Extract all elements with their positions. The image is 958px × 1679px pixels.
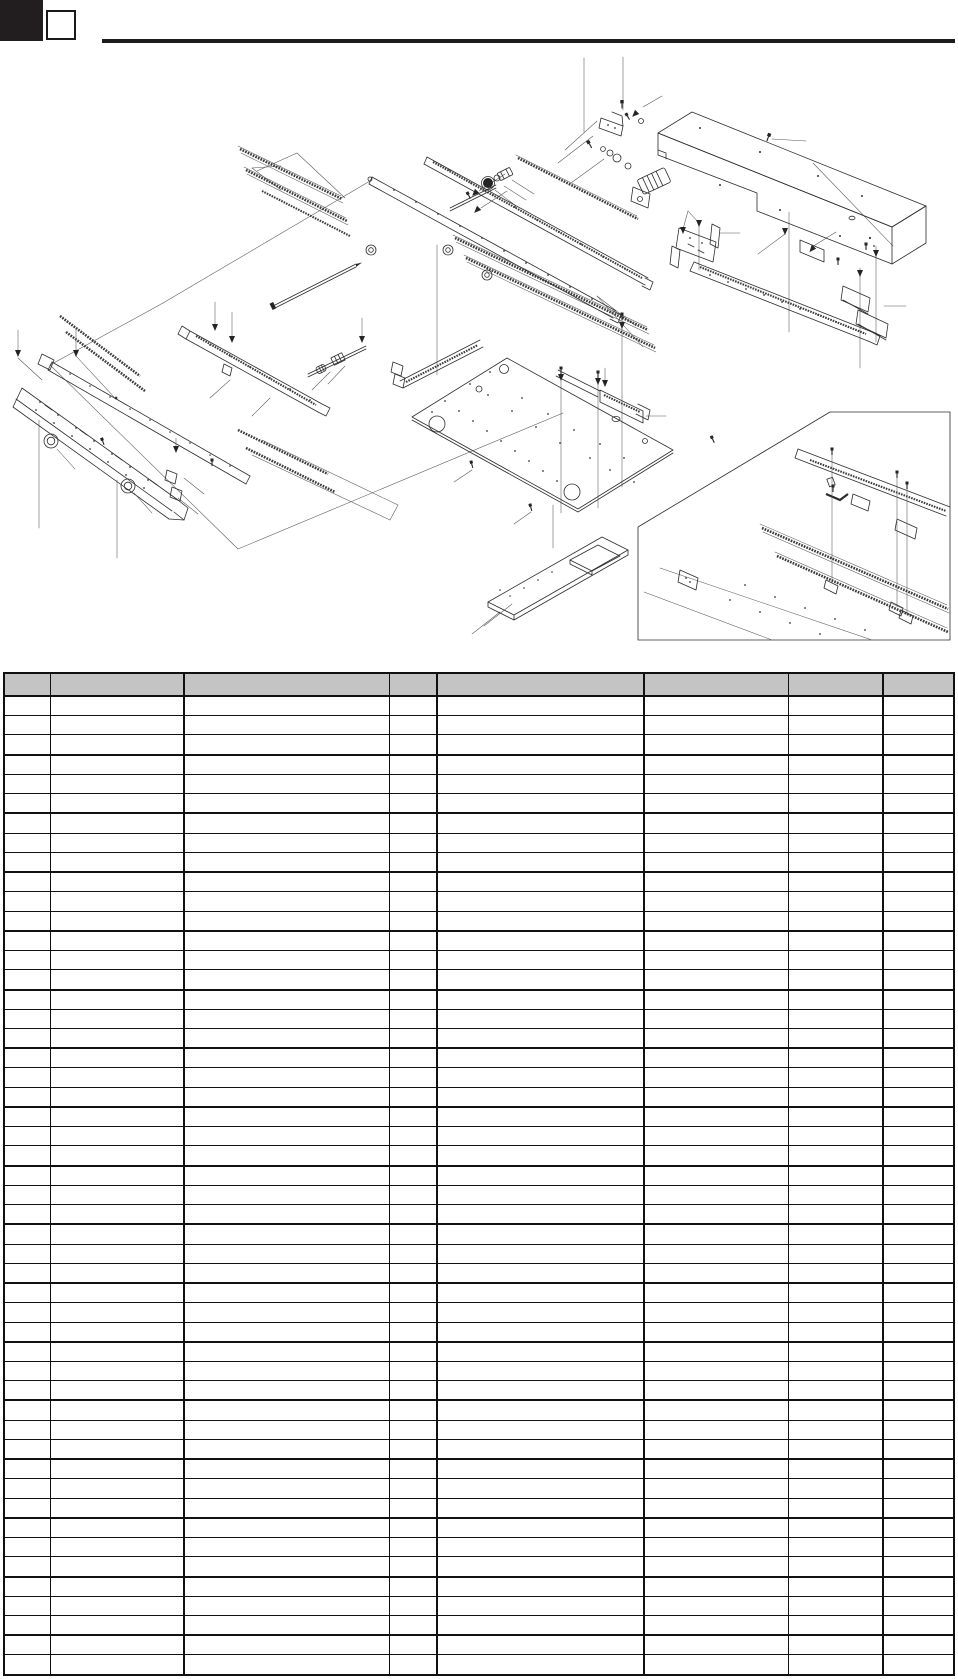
table-cell (51, 1557, 185, 1575)
table-cell (51, 1049, 185, 1067)
table-cell (789, 1323, 884, 1341)
table-cell (185, 1029, 390, 1047)
table-cell (438, 794, 645, 812)
table-cell (51, 1146, 185, 1164)
table-cell (51, 1499, 185, 1517)
table-cell (645, 912, 789, 930)
table-cell (645, 853, 789, 871)
table-cell (5, 1029, 51, 1047)
table-cell (438, 1460, 645, 1478)
table-cell (884, 834, 953, 852)
table-cell (884, 794, 953, 812)
table-cell (884, 716, 953, 734)
table-cell (789, 1381, 884, 1399)
table-cell (390, 1636, 438, 1654)
table-cell (438, 1421, 645, 1439)
table-cell (5, 1538, 51, 1556)
table-cell (185, 1167, 390, 1185)
table-cell (884, 1303, 953, 1321)
table-cell (390, 1264, 438, 1282)
table-cell (390, 951, 438, 969)
table-cell (51, 1264, 185, 1282)
table-cell (645, 1245, 789, 1263)
table-cell (438, 1029, 645, 1047)
table-row (5, 1127, 953, 1146)
table-cell (438, 1088, 645, 1106)
table-cell (884, 1225, 953, 1243)
table-cell (5, 1205, 51, 1223)
header-cell (390, 674, 438, 695)
table-cell (5, 1167, 51, 1185)
table-cell (438, 1538, 645, 1556)
table-cell (884, 912, 953, 930)
table-cell (390, 716, 438, 734)
table-cell (789, 1186, 884, 1204)
table-cell (789, 1264, 884, 1282)
table-cell (789, 932, 884, 950)
table-cell (5, 912, 51, 930)
table-cell (789, 1245, 884, 1263)
table-row (5, 1205, 953, 1225)
table-cell (51, 814, 185, 832)
table-cell (645, 756, 789, 774)
table-cell (185, 1557, 390, 1575)
table-cell (185, 1323, 390, 1341)
table-cell (185, 1499, 390, 1517)
table-cell (51, 716, 185, 734)
table-cell (789, 912, 884, 930)
table-cell (51, 775, 185, 793)
table-cell (5, 1557, 51, 1575)
table-row (5, 1597, 953, 1616)
table-cell (884, 1421, 953, 1439)
table-cell (185, 1186, 390, 1204)
table-cell (438, 1205, 645, 1223)
table-cell (390, 1205, 438, 1223)
table-cell (185, 1421, 390, 1439)
table-cell (438, 1440, 645, 1458)
table-cell (5, 1225, 51, 1243)
table-cell (645, 794, 789, 812)
table-row (5, 735, 953, 755)
table-cell (5, 1323, 51, 1341)
cross-rails (178, 157, 880, 416)
table-row (5, 756, 953, 775)
table-cell (51, 1225, 185, 1243)
table-cell (438, 1068, 645, 1086)
table-cell (645, 1225, 789, 1243)
table-cell (789, 716, 884, 734)
table-cell (5, 1421, 51, 1439)
table-cell (789, 873, 884, 891)
table-cell (884, 991, 953, 1009)
table-cell (390, 735, 438, 753)
table-cell (5, 991, 51, 1009)
table-cell (884, 1519, 953, 1537)
table-cell (789, 1303, 884, 1321)
table-cell (390, 1049, 438, 1067)
table-cell (185, 873, 390, 891)
table-cell (645, 1088, 789, 1106)
table-cell (884, 932, 953, 950)
table-cell (645, 932, 789, 950)
table-cell (438, 1146, 645, 1164)
table-cell (185, 932, 390, 950)
table-cell (185, 1127, 390, 1145)
table-cell (390, 1538, 438, 1556)
table-cell (51, 1538, 185, 1556)
table-row (5, 1538, 953, 1557)
table-cell (645, 716, 789, 734)
table-header-row (5, 674, 953, 697)
table-cell (645, 1460, 789, 1478)
table-cell (390, 1245, 438, 1263)
table-row (5, 1264, 953, 1284)
table-cell (645, 1186, 789, 1204)
table-cell (5, 1108, 51, 1126)
header-cell (789, 674, 884, 695)
table-row (5, 1460, 953, 1479)
table-cell (789, 1029, 884, 1047)
table-row (5, 1440, 953, 1460)
table-cell (438, 873, 645, 891)
table-cell (185, 1578, 390, 1596)
table-cell (185, 814, 390, 832)
table-cell (390, 1460, 438, 1478)
table-cell (390, 932, 438, 950)
table-cell (789, 775, 884, 793)
table-cell (390, 1557, 438, 1575)
table-cell (5, 1578, 51, 1596)
table-cell (438, 1323, 645, 1341)
table-row (5, 853, 953, 873)
table-cell (390, 853, 438, 871)
table-cell (438, 775, 645, 793)
table-cell (185, 1225, 390, 1243)
table-row (5, 1616, 953, 1636)
table-cell (438, 716, 645, 734)
table-row (5, 1479, 953, 1498)
header-cell (185, 674, 390, 695)
table-cell (438, 834, 645, 852)
table-cell (438, 1049, 645, 1067)
table-cell (51, 735, 185, 753)
table-cell (51, 697, 185, 715)
table-cell (185, 716, 390, 734)
table-cell (645, 1049, 789, 1067)
table-row (5, 1655, 953, 1673)
table-cell (789, 1146, 884, 1164)
table-cell (390, 1029, 438, 1047)
table-cell (438, 1479, 645, 1497)
table-cell (438, 1127, 645, 1145)
table-cell (185, 1636, 390, 1654)
table-cell (438, 1245, 645, 1263)
table-row (5, 1401, 953, 1420)
table-cell (645, 1264, 789, 1282)
table-cell (51, 1284, 185, 1302)
table-row (5, 834, 953, 853)
table-cell (185, 1479, 390, 1497)
table-cell (390, 1616, 438, 1634)
table-cell (645, 1029, 789, 1047)
table-cell (185, 1655, 390, 1673)
table-cell (51, 1381, 185, 1399)
table-cell (438, 892, 645, 910)
table-cell (789, 1049, 884, 1067)
table-cell (51, 1303, 185, 1321)
table-cell (5, 970, 51, 988)
table-cell (390, 1068, 438, 1086)
table-cell (390, 1167, 438, 1185)
table-row (5, 1499, 953, 1519)
screw-arrows (15, 100, 909, 511)
table-cell (390, 1519, 438, 1537)
table-cell (51, 1343, 185, 1361)
exploded-parts-figure (0, 0, 958, 660)
table-row (5, 991, 953, 1010)
table-cell (884, 892, 953, 910)
table-cell (438, 1225, 645, 1243)
table-cell (645, 775, 789, 793)
table-cell (789, 1284, 884, 1302)
table-cell (5, 932, 51, 950)
table-cell (390, 1362, 438, 1380)
table-cell (51, 1655, 185, 1673)
table-cell (390, 1323, 438, 1341)
table-cell (5, 1362, 51, 1380)
chassis-rails-left (13, 354, 250, 520)
table-cell (438, 814, 645, 832)
exploded-parts-diagram (0, 0, 958, 660)
table-row (5, 912, 953, 932)
table-cell (5, 1460, 51, 1478)
table-cell (390, 1440, 438, 1458)
table-cell (645, 1421, 789, 1439)
table-cell (5, 814, 51, 832)
table-cell (645, 1343, 789, 1361)
table-row (5, 1068, 953, 1087)
table-cell (390, 756, 438, 774)
table-row (5, 1108, 953, 1127)
table-cell (884, 1264, 953, 1282)
table-row (5, 716, 953, 735)
table-cell (5, 1284, 51, 1302)
table-cell (645, 1616, 789, 1634)
table-cell (390, 1284, 438, 1302)
table-cell (884, 1460, 953, 1478)
table-row (5, 1303, 953, 1322)
table-cell (645, 1146, 789, 1164)
table-cell (390, 697, 438, 715)
table-cell (789, 1108, 884, 1126)
table-row (5, 1284, 953, 1303)
table-cell (185, 1343, 390, 1361)
table-cell (789, 794, 884, 812)
table-cell (789, 1440, 884, 1458)
table-cell (438, 1597, 645, 1615)
table-row (5, 1088, 953, 1108)
table-cell (5, 697, 51, 715)
table-cell (390, 834, 438, 852)
table-cell (185, 1460, 390, 1478)
table-cell (390, 1343, 438, 1361)
table-cell (438, 1362, 645, 1380)
table-row (5, 697, 953, 716)
table-cell (438, 1578, 645, 1596)
table-cell (51, 1186, 185, 1204)
table-cell (185, 1245, 390, 1263)
table-row (5, 892, 953, 911)
table-cell (789, 1088, 884, 1106)
table-cell (884, 1499, 953, 1517)
table-cell (884, 1029, 953, 1047)
table-cell (185, 1146, 390, 1164)
table-cell (51, 1108, 185, 1126)
table-cell (51, 756, 185, 774)
bottom-tray (488, 537, 628, 620)
table-cell (5, 834, 51, 852)
table-cell (884, 1343, 953, 1361)
header-cell (438, 674, 645, 695)
table-cell (5, 1186, 51, 1204)
table-cell (789, 834, 884, 852)
table-cell (390, 1401, 438, 1419)
table-cell (390, 912, 438, 930)
table-cell (884, 1381, 953, 1399)
table-cell (185, 1284, 390, 1302)
table-row (5, 1519, 953, 1538)
table-cell (185, 1068, 390, 1086)
table-cell (884, 1440, 953, 1458)
table-cell (884, 756, 953, 774)
table-cell (51, 991, 185, 1009)
table-cell (884, 697, 953, 715)
table-cell (789, 1557, 884, 1575)
table-cell (390, 1655, 438, 1673)
table-cell (5, 1597, 51, 1615)
table-cell (438, 1381, 645, 1399)
table-cell (789, 1167, 884, 1185)
table-cell (185, 834, 390, 852)
table-cell (51, 1421, 185, 1439)
table-cell (789, 735, 884, 753)
table-cell (645, 1068, 789, 1086)
table-cell (5, 794, 51, 812)
table-cell (884, 1010, 953, 1028)
table-cell (5, 853, 51, 871)
table-cell (645, 1538, 789, 1556)
table-cell (884, 735, 953, 753)
table-cell (789, 1225, 884, 1243)
table-row (5, 794, 953, 814)
table-cell (884, 1636, 953, 1654)
table-cell (645, 1636, 789, 1654)
table-cell (390, 1010, 438, 1028)
table-cell (185, 1049, 390, 1067)
table-cell (789, 1460, 884, 1478)
beam (639, 112, 927, 264)
table-cell (390, 1421, 438, 1439)
table-row (5, 1362, 953, 1381)
table-cell (51, 1323, 185, 1341)
table-cell (5, 1343, 51, 1361)
table-cell (51, 1616, 185, 1634)
table-cell (185, 735, 390, 753)
table-cell (5, 1068, 51, 1086)
table-cell (884, 814, 953, 832)
table-cell (185, 1597, 390, 1615)
table-row (5, 1421, 953, 1440)
header-cell (884, 674, 953, 695)
table-cell (884, 1186, 953, 1204)
table-cell (789, 991, 884, 1009)
table-cell (51, 1127, 185, 1145)
table-cell (390, 1127, 438, 1145)
table-cell (789, 1597, 884, 1615)
table-cell (789, 1401, 884, 1419)
table-row (5, 814, 953, 833)
table-row (5, 970, 953, 990)
table-cell (185, 1088, 390, 1106)
table-cell (51, 912, 185, 930)
table-cell (438, 1343, 645, 1361)
table-cell (884, 1597, 953, 1615)
table-cell (438, 735, 645, 753)
table-cell (438, 970, 645, 988)
table-cell (884, 1401, 953, 1419)
table-cell (645, 1401, 789, 1419)
table-cell (390, 892, 438, 910)
table-cell (645, 814, 789, 832)
table-cell (51, 1245, 185, 1263)
table-cell (5, 716, 51, 734)
table-cell (185, 1401, 390, 1419)
table-cell (884, 1146, 953, 1164)
table-cell (884, 1167, 953, 1185)
table-cell (51, 1578, 185, 1596)
table-cell (390, 794, 438, 812)
table-cell (645, 1127, 789, 1145)
table-cell (51, 1401, 185, 1419)
table-cell (884, 853, 953, 871)
table-row (5, 1186, 953, 1205)
table-cell (51, 1440, 185, 1458)
table-row (5, 1323, 953, 1343)
table-cell (438, 1499, 645, 1517)
table-row (5, 1245, 953, 1264)
table-cell (185, 951, 390, 969)
table-cell (789, 1499, 884, 1517)
table-row (5, 1343, 953, 1362)
table-cell (51, 970, 185, 988)
table-cell (185, 756, 390, 774)
table-cell (5, 1440, 51, 1458)
table-cell (185, 1538, 390, 1556)
table-cell (645, 991, 789, 1009)
table-cell (5, 1088, 51, 1106)
table-row (5, 1167, 953, 1186)
table-cell (390, 970, 438, 988)
table-cell (51, 932, 185, 950)
table-cell (51, 1205, 185, 1223)
table-cell (438, 1616, 645, 1634)
table-cell (789, 1068, 884, 1086)
table-cell (645, 1578, 789, 1596)
table-cell (51, 1479, 185, 1497)
table-cell (438, 1636, 645, 1654)
table-row (5, 1381, 953, 1401)
